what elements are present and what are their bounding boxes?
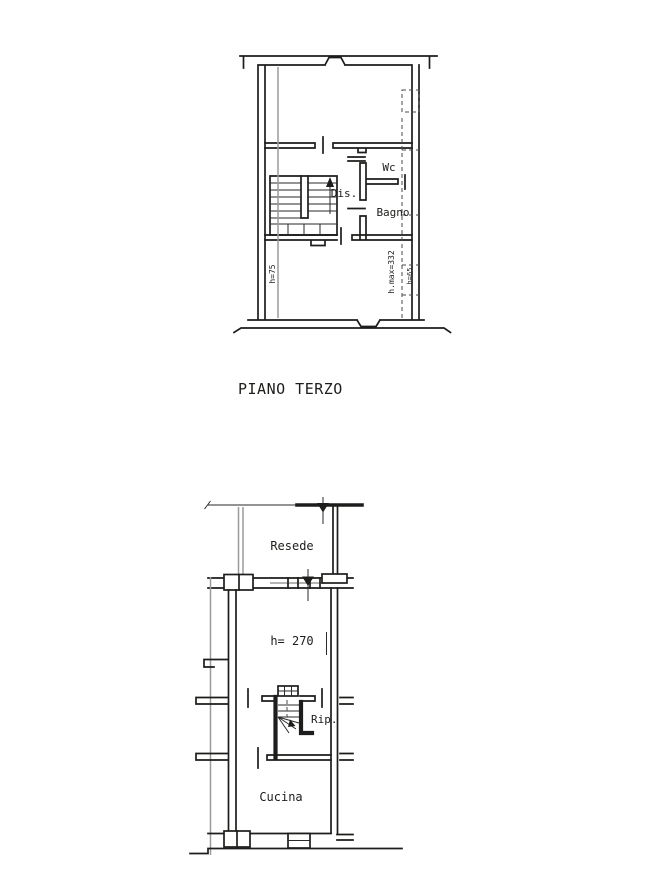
room-label-rip: Rip. — [311, 713, 338, 726]
floor-plan-drawing: Wc Dis. Bagno h=75 h.max=332 h=65 PIANO … — [0, 0, 665, 882]
left-wall-stubs — [196, 660, 228, 761]
floor-title: PIANO TERZO — [238, 380, 343, 398]
stair-lower-treads — [278, 705, 299, 733]
annotation-h-left: h=75 — [268, 264, 277, 283]
rip-bottom-wall — [258, 748, 331, 768]
resede-area — [205, 497, 363, 578]
room-label-bagno: Bagno — [376, 206, 409, 219]
rip-staircase-zone — [248, 686, 331, 768]
resede-right-wall — [333, 506, 338, 578]
resede-top-line-thin — [205, 501, 298, 509]
stair-center-wall — [301, 176, 308, 218]
upper-staircase — [270, 176, 337, 235]
bottom-wall-right-stub — [337, 835, 353, 841]
bottom-wall — [190, 831, 402, 854]
upper-floor-plan: Wc Dis. Bagno h=75 h.max=332 h=65 — [234, 56, 451, 333]
stair-treads — [270, 183, 337, 235]
entrance-arrow-top-head — [317, 503, 329, 513]
stair-up-arrow-head — [326, 177, 334, 187]
bottom-wall-lower-line — [190, 849, 402, 854]
divider-right-notch — [322, 574, 347, 583]
annotation-h-270: h= 270 — [270, 634, 313, 648]
resede-left-wall — [239, 507, 244, 577]
annotation-h-right: h=65 — [406, 268, 414, 285]
right-wall-stubs — [340, 698, 353, 761]
room-label-wc: Wc — [382, 161, 395, 174]
upper-middle-wall — [265, 137, 412, 153]
room-label-resede: Resede — [270, 539, 313, 553]
room-label-dis: Dis. — [331, 187, 358, 200]
lower-floor-plan: Resede h= 270 Rip. Cucina — [190, 497, 402, 855]
annotation-h-max: h.max=332 — [387, 250, 396, 294]
entrance-arrow-mid-head — [302, 577, 314, 587]
room-label-cucina: Cucina — [259, 790, 302, 804]
